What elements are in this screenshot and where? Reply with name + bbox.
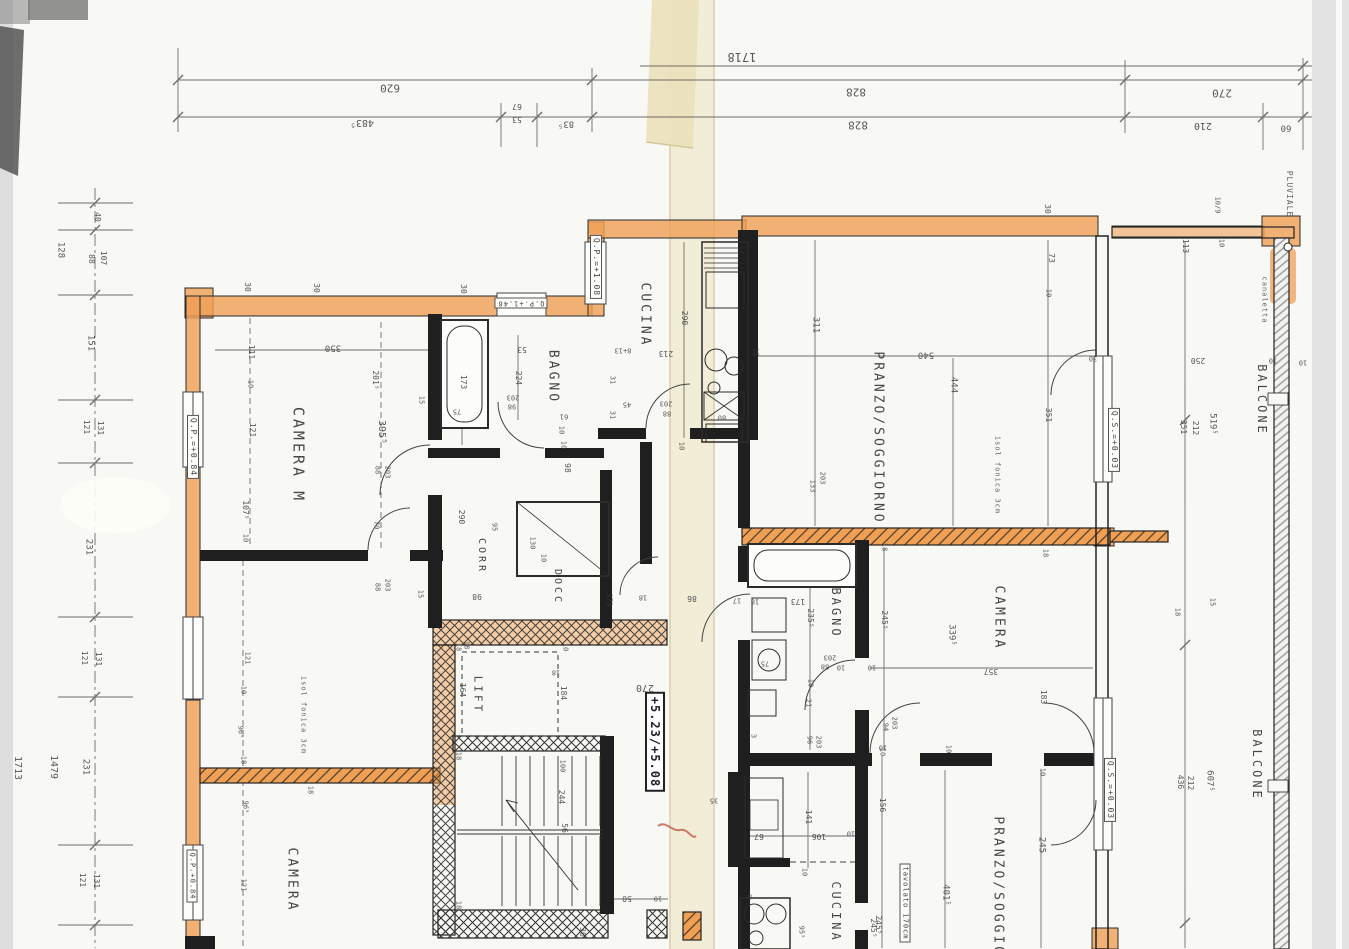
scanned-floorplan-page: 1718620828483⁵675383⁵8282702106040128881… [0, 0, 1349, 949]
floorplan-drawing [0, 0, 1349, 949]
fold-seam [646, 0, 714, 949]
interior-walls [185, 230, 1100, 949]
fixtures [441, 242, 856, 949]
window-boxes [183, 242, 1112, 920]
stairs-lift [457, 652, 603, 906]
east-wall-and-balcony [1096, 227, 1294, 949]
